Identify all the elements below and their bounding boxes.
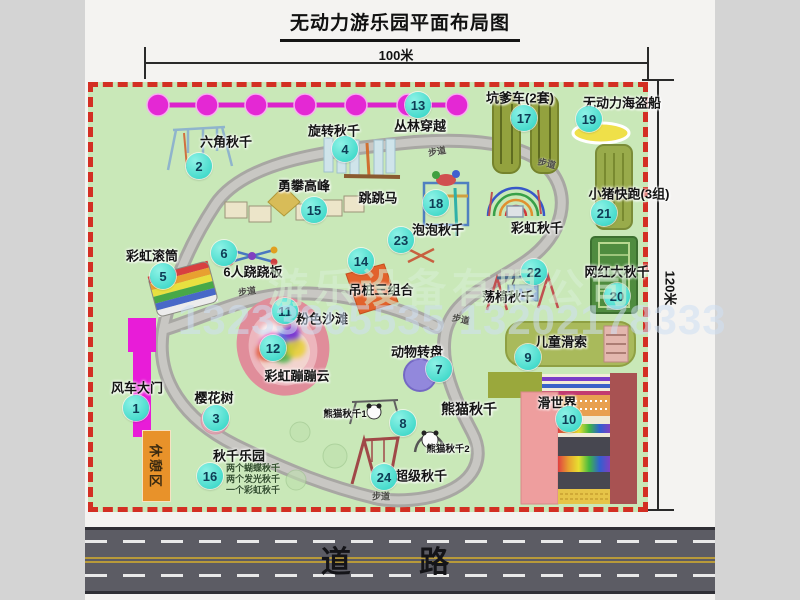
label-rainbow-roller: 彩虹滚筒 [126,246,178,265]
swing-park-detail-1: 两个蝴蝶秋千 [226,463,280,474]
marker-9: 9 [515,344,541,370]
marker-21: 21 [591,200,617,226]
windmill-gate-top [128,318,156,352]
marker-23: 23 [388,227,414,253]
park-plan-stage: 无动力游乐园平面布局图 100米 120米 [0,0,800,600]
dimension-tick-top-left [144,47,146,79]
marker-11: 11 [272,298,298,324]
label-climb-peak: 勇攀高峰 [278,176,330,195]
dimension-tick-right-top [642,79,674,81]
marker-15: 15 [301,197,327,223]
label-rotary-swing: 旋转秋千 [308,121,360,140]
marker-7: 7 [426,356,452,382]
label-bubble-swing: 泡泡秋千 [412,220,464,239]
swing-park-detail-2: 两个发光秋千 [226,474,280,485]
label-super-swing: 超级秋千 [395,466,447,485]
marker-8: 8 [390,410,416,436]
label-big-swing: 网红大秋千 [584,262,649,281]
walkway-label-5: 步道 [372,490,390,503]
marker-18: 18 [423,190,449,216]
marker-24: 24 [371,464,397,490]
rest-area: 休憩区 [142,430,171,502]
label-chair-swing: 荡椅秋千 [482,287,534,306]
marker-10: 10 [556,406,582,432]
dimension-label-height: 120米 [662,271,681,306]
marker-5: 5 [150,263,176,289]
marker-22: 22 [521,259,547,285]
label-jungle-crossing: 丛林穿越 [394,116,446,135]
label-panda-swing: 熊猫秋千 [441,399,497,419]
label-pink-beach: 粉色沙滩 [296,309,348,328]
swing-park-detail-3: 一个彩虹秋千 [226,485,280,496]
marker-16: 16 [197,463,223,489]
marker-12: 12 [260,335,286,361]
dimension-line-right [657,80,659,510]
label-seesaw6: 6人跷跷板 [223,262,282,281]
marker-19: 19 [576,106,602,132]
marker-14: 14 [348,248,374,274]
dimension-tick-top-right [647,47,649,79]
label-panda-swing-1: 熊猫秋千1 [323,406,366,420]
label-rainbow-cloud: 彩虹蹦蹦云 [264,366,329,385]
label-swing-park: 秋千乐园 [213,446,265,465]
label-hex-swing: 六角秋千 [200,132,252,151]
marker-2: 2 [186,153,212,179]
marker-17: 17 [511,105,537,131]
label-windmill-gate: 风车大门 [111,378,163,397]
marker-3: 3 [203,405,229,431]
label-rainbow-swing: 彩虹秋千 [511,218,563,237]
rest-area-label: 休憩区 [147,443,166,488]
dimension-label-width: 100米 [379,45,414,64]
swing-park-details: 两个蝴蝶秋千 两个发光秋千 一个彩虹秋千 [226,463,280,496]
marker-20: 20 [604,283,630,309]
label-panda-swing-2: 熊猫秋千2 [426,441,469,455]
road-label: 道 路 [321,537,479,581]
label-jump-horse: 跳跳马 [358,188,397,207]
marker-4: 4 [332,136,358,162]
label-cherry-tree: 樱花树 [194,388,233,407]
road: 道 路 [85,527,715,594]
marker-6: 6 [211,240,237,266]
label-hanging-piles: 吊桩三组合 [348,280,413,299]
marker-13: 13 [405,92,431,118]
label-kids-zipline: 儿童滑索 [535,332,587,351]
marker-1: 1 [123,395,149,421]
label-pit-cart: 坑爹车(2套) [486,88,554,107]
walkway-label-3: 步道 [237,283,257,298]
page-title: 无动力游乐园平面布局图 [280,8,520,42]
